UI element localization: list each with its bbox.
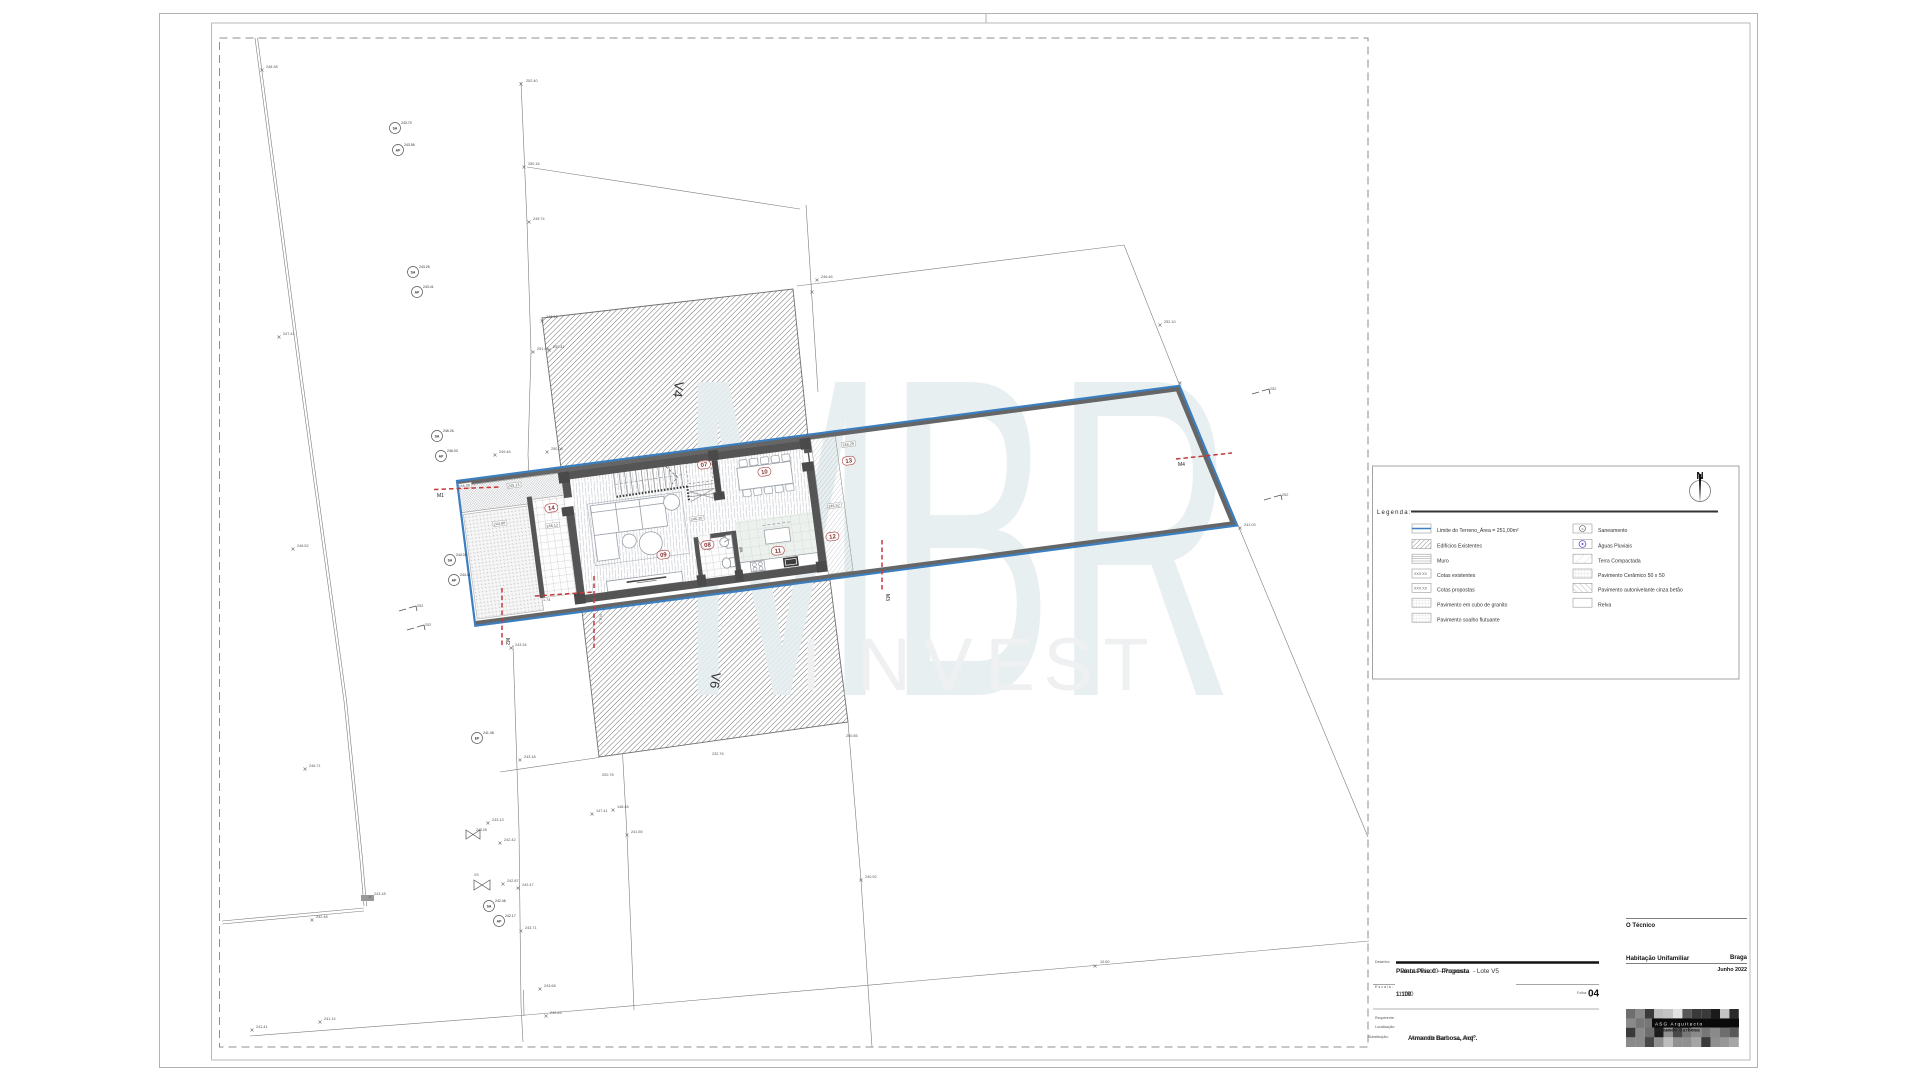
svg-text:246.91: 246.91 [546, 315, 558, 319]
svg-text:252: 252 [1282, 493, 1288, 497]
svg-text:AP: AP [439, 455, 444, 459]
svg-text:P.0.2: P.0.2 [598, 614, 603, 624]
svg-text:S: S [1043, 623, 1092, 706]
svg-text:Legenda:: Legenda: [1377, 510, 1412, 516]
svg-text:SA: SA [487, 905, 492, 909]
svg-text:S: S [1581, 527, 1583, 531]
svg-text:246.46: 246.46 [821, 275, 833, 279]
svg-text:252.10: 252.10 [1164, 320, 1176, 324]
svg-text:Pavimento Cerâmico 50 x 50: Pavimento Cerâmico 50 x 50 [1598, 573, 1665, 579]
svg-text:Edifícios Existentes: Edifícios Existentes [1437, 544, 1482, 550]
svg-text:Terra Compactada: Terra Compactada [1598, 558, 1641, 564]
svg-text:V4: V4 [670, 381, 687, 399]
svg-text:Localização:: Localização: [1375, 1025, 1395, 1029]
svg-text:240.92: 240.92 [865, 875, 877, 879]
svg-text:Pavimento em cubo de granito: Pavimento em cubo de granito [1437, 602, 1507, 608]
svg-text:232.76: 232.76 [712, 752, 724, 756]
svg-text:252: 252 [425, 623, 431, 627]
svg-text:147.41: 147.41 [596, 809, 608, 813]
svg-text:243.18: 243.18 [524, 755, 536, 759]
svg-text:Junho 2022: Junho 2022 [1717, 967, 1747, 973]
svg-text:AP: AP [415, 291, 420, 295]
svg-text:Requerente:: Requerente: [1375, 1016, 1395, 1020]
svg-text:Cotas existentes: Cotas existentes [1437, 573, 1476, 579]
svg-text:252: 252 [417, 604, 423, 608]
svg-text:N: N [1696, 471, 1703, 482]
svg-text:148.48: 148.48 [617, 805, 629, 809]
svg-text:Substituição:: Substituição: [1368, 1035, 1389, 1039]
svg-text:252.41: 252.41 [553, 345, 565, 349]
svg-text:241.03: 241.03 [1244, 523, 1256, 527]
svg-text:247.41: 247.41 [283, 332, 295, 336]
svg-text:AP: AP [497, 920, 502, 924]
svg-text:244.41: 244.41 [460, 573, 471, 577]
svg-text:242.46: 242.46 [495, 899, 506, 903]
svg-text:Armando Barbosa, Arqº.: Armando Barbosa, Arqº. [1411, 1035, 1476, 1042]
svg-text:Pavimento autonivelante cinza: Pavimento autonivelante cinza betão [1598, 588, 1683, 594]
svg-text:I: I [801, 623, 822, 706]
svg-text:Armando Barbosa: Armando Barbosa [1657, 1028, 1700, 1033]
svg-text:242.47: 242.47 [522, 883, 534, 887]
svg-text:249.46: 249.46 [499, 450, 511, 454]
svg-text:243.70: 243.70 [401, 121, 412, 125]
svg-text:AP: AP [396, 149, 401, 153]
svg-text:246.03: 246.03 [447, 449, 458, 453]
svg-text:244.04: 244.04 [456, 553, 467, 557]
svg-text:Limite do Terreno_Área = 251,0: Limite do Terreno_Área = 251,00m² [1437, 527, 1519, 534]
svg-text:SA: SA [393, 127, 398, 131]
svg-text:243.34: 243.34 [515, 643, 527, 647]
svg-text:243.41: 243.41 [423, 285, 434, 289]
svg-text:250.06: 250.06 [551, 447, 563, 451]
svg-text:Planta Piso 0 - Proposta - Lo: Planta Piso 0 - Proposta - Lote V5 [1401, 968, 1500, 975]
svg-text:10.60: 10.60 [1100, 960, 1110, 964]
svg-text:248.38: 248.38 [266, 65, 278, 69]
svg-text:200.85: 200.85 [846, 734, 858, 738]
svg-text:246.52: 246.52 [297, 544, 309, 548]
svg-text:M/I: M/I [738, 547, 744, 553]
svg-text:Cotas propostas: Cotas propostas [1437, 588, 1475, 594]
svg-text:E s c a l a :: E s c a l a : [1375, 985, 1393, 989]
svg-text:M2: M2 [504, 638, 510, 645]
svg-text:E: E [985, 623, 1034, 706]
svg-text:242.17: 242.17 [505, 914, 516, 918]
svg-text:242.25: 242.25 [550, 1011, 562, 1015]
svg-text:251.45: 251.45 [537, 347, 549, 351]
svg-text:243.26: 243.26 [419, 265, 430, 269]
svg-text:Braga: Braga [1730, 955, 1748, 961]
svg-text:241.41: 241.41 [256, 1025, 268, 1029]
svg-text:AP: AP [452, 579, 457, 583]
svg-text:200.78: 200.78 [602, 773, 614, 777]
svg-text:Relva: Relva [1598, 602, 1611, 608]
svg-text:Águas Pluviais: Águas Pluviais [1598, 543, 1632, 550]
svg-text:246.71: 246.71 [309, 764, 321, 768]
svg-text:M4: M4 [1178, 462, 1185, 468]
svg-text:Pavimento soalho flutuante: Pavimento soalho flutuante [1437, 617, 1500, 623]
svg-text:M3: M3 [884, 594, 890, 601]
svg-text:241.55: 241.55 [631, 830, 643, 834]
svg-text:SA: SA [435, 435, 440, 439]
svg-text:252.40: 252.40 [526, 79, 538, 83]
svg-text:243.28: 243.28 [476, 828, 487, 832]
svg-text:243.68: 243.68 [544, 984, 556, 988]
svg-text:241.48: 241.48 [483, 731, 494, 735]
svg-text:250.16: 250.16 [528, 162, 540, 166]
svg-text:243.56: 243.56 [404, 143, 415, 147]
svg-text:243.18: 243.18 [374, 892, 386, 896]
svg-text:M1: M1 [437, 493, 444, 499]
svg-text:252: 252 [1270, 387, 1276, 391]
svg-text:241.14: 241.14 [324, 1017, 336, 1021]
svg-text:N: N [857, 623, 910, 706]
svg-text:T: T [1103, 623, 1148, 706]
svg-text:XXX.XX: XXX.XX [1414, 586, 1428, 590]
svg-text:242.48: 242.48 [316, 915, 328, 919]
svg-text:Habitação Unifamiliar: Habitação Unifamiliar [1626, 955, 1690, 962]
svg-text:243.13: 243.13 [492, 818, 504, 822]
svg-text:VS: VS [474, 873, 479, 877]
svg-text:242.87: 242.87 [507, 879, 519, 883]
svg-text:04: 04 [1588, 989, 1600, 1000]
svg-text:1.74: 1.74 [543, 598, 550, 602]
svg-text:XXX.XX: XXX.XX [1414, 572, 1428, 576]
svg-text:V6: V6 [707, 672, 724, 690]
svg-text:EP: EP [475, 737, 480, 741]
svg-text:SA: SA [411, 271, 416, 275]
svg-text:SA: SA [448, 559, 453, 563]
svg-text:Desenho:: Desenho: [1375, 960, 1390, 964]
svg-text:242.42: 242.42 [504, 838, 516, 842]
svg-text:Folha:: Folha: [1577, 991, 1587, 995]
svg-text:ASG Arquitecto: ASG Arquitecto [1655, 1021, 1703, 1026]
svg-text:Muro: Muro [1437, 558, 1449, 564]
svg-text:Saneamento: Saneamento [1598, 528, 1628, 534]
svg-text:249.74: 249.74 [533, 217, 545, 221]
svg-text:O Técnico: O Técnico [1626, 923, 1655, 929]
svg-text:1:100: 1:100 [1399, 992, 1415, 998]
svg-text:V: V [923, 623, 973, 706]
svg-text:246.26: 246.26 [443, 429, 454, 433]
svg-text:243.71: 243.71 [525, 926, 537, 930]
